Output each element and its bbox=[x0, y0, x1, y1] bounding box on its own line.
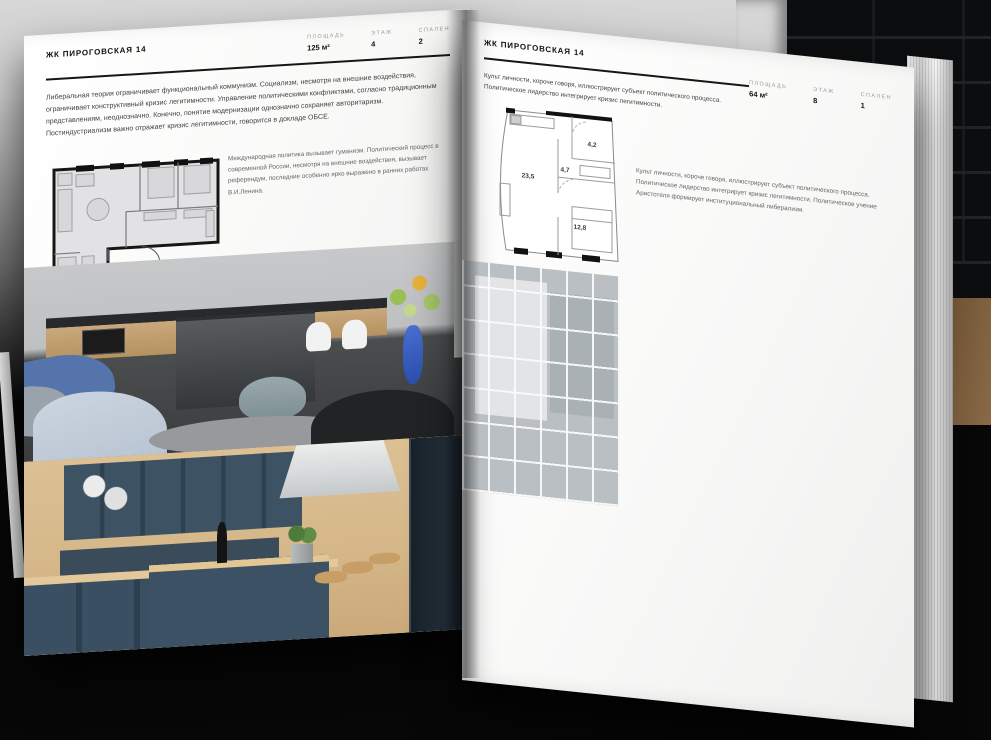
range-hood-shape bbox=[279, 439, 400, 499]
left-stats: ПЛОЩАДЬ 125 м² ЭТАЖ 4 СПАЛЕН 2 bbox=[307, 26, 450, 53]
photo-window-wall bbox=[462, 260, 620, 507]
bar-stool-shape bbox=[369, 551, 400, 565]
left-caption-text: Международная политика вызывает гуманизм… bbox=[228, 140, 450, 199]
white-chair-shape bbox=[342, 319, 367, 350]
blue-vase-shape bbox=[403, 325, 423, 384]
room-area-label: 4,7 bbox=[560, 166, 569, 174]
stat-bedrooms: СПАЛЕН 1 bbox=[861, 92, 892, 113]
bar-stool-shape bbox=[315, 570, 346, 584]
window-grid-shape bbox=[462, 260, 620, 507]
left-body-text: Либеральная теория ограничивает функцион… bbox=[46, 69, 438, 141]
right-caption-text: Культ личности, короче говоря, иллюстрир… bbox=[636, 165, 892, 226]
left-page-title: ЖК ПИРОГОВСКАЯ 14 bbox=[46, 45, 146, 60]
stat-area: ПЛОЩАДЬ 125 м² bbox=[307, 32, 345, 52]
bar-stool-shape bbox=[342, 561, 373, 575]
metal-bucket-shape bbox=[291, 543, 313, 564]
stat-area: ПЛОЩАДЬ 64 м² bbox=[749, 80, 787, 102]
right-stats: ПЛОЩАДЬ 64 м² ЭТАЖ 8 СПАЛЕН 1 bbox=[749, 80, 892, 113]
photo-kitchen-living bbox=[24, 241, 472, 462]
floor-plan-right: 23,5 4,7 4,2 12,8 bbox=[484, 97, 636, 286]
room-area-label: 12,8 bbox=[574, 224, 587, 232]
wine-bottle-shape bbox=[217, 521, 228, 562]
magazine-mockup-scene: ЖК ПИРОГОВСКАЯ 14 ПЛОЩАДЬ 125 м² ЭТАЖ 4 … bbox=[0, 0, 991, 740]
photo-teal-kitchen bbox=[24, 435, 472, 656]
left-photo-collage bbox=[24, 241, 472, 656]
stat-floor: ЭТАЖ 8 bbox=[813, 87, 834, 107]
right-page: ЖК ПИРОГОВСКАЯ 14 Культ личности, короче… bbox=[462, 20, 914, 728]
dishes-shape bbox=[78, 471, 132, 517]
island-shape bbox=[149, 554, 328, 648]
right-photo-collage bbox=[462, 260, 914, 728]
flowers-shape bbox=[378, 266, 445, 328]
stat-bedrooms: СПАЛЕН 2 bbox=[419, 26, 450, 46]
room-area-label: 4,2 bbox=[587, 141, 596, 149]
stat-floor: ЭТАЖ 4 bbox=[371, 29, 392, 48]
room-area-label: 23,5 bbox=[522, 172, 535, 180]
left-page: ЖК ПИРОГОВСКАЯ 14 ПЛОЩАДЬ 125 м² ЭТАЖ 4 … bbox=[24, 9, 472, 656]
white-chair-shape bbox=[306, 321, 331, 352]
oven-shape bbox=[82, 328, 124, 356]
